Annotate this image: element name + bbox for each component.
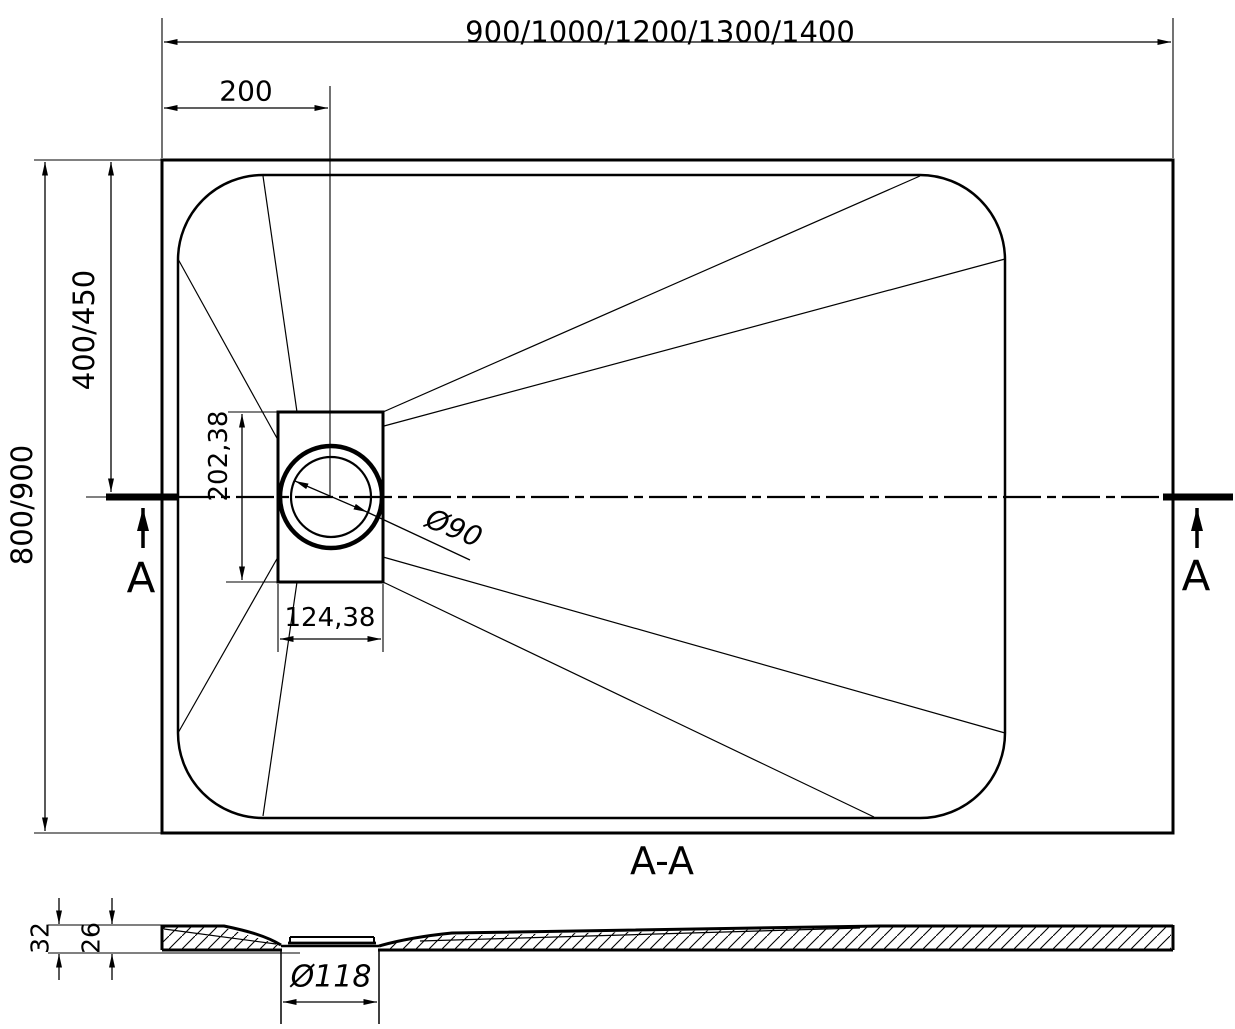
dim-edge-thickness-label: 26 [77,922,106,954]
technical-drawing-page: 900/1000/1200/1300/1400 200 800/900 400/… [0,0,1235,1029]
dim-overall-thickness-label: 32 [26,922,55,954]
slope-line [263,176,297,412]
dim-drain-center-label: 400/450 [67,270,101,390]
dim-recess-height-label: 202,38 [204,411,234,502]
section-title: A-A [630,839,694,883]
shower-tray-drawing: 900/1000/1200/1300/1400 200 800/900 400/… [0,0,1235,1029]
slope-line [383,557,1005,733]
labels: 900/1000/1200/1300/1400 200 800/900 400/… [5,15,1211,995]
dim-drain-hole-label: Ø118 [289,960,372,995]
slope-line [383,582,874,817]
dim-drain-diameter-label: Ø90 [420,502,487,555]
slope-line [178,557,278,733]
slope-line [384,259,1005,426]
dim-recess-width-label: 124,38 [285,603,376,633]
section-marker-left-label: A [127,554,156,603]
dim-drain-offset-label: 200 [219,75,272,108]
slope-line [383,176,920,412]
section-marker-right-label: A [1182,552,1211,601]
dim-height-label: 800/900 [5,445,39,565]
section-view [48,898,1173,1024]
dim-width-label: 900/1000/1200/1300/1400 [465,15,855,49]
